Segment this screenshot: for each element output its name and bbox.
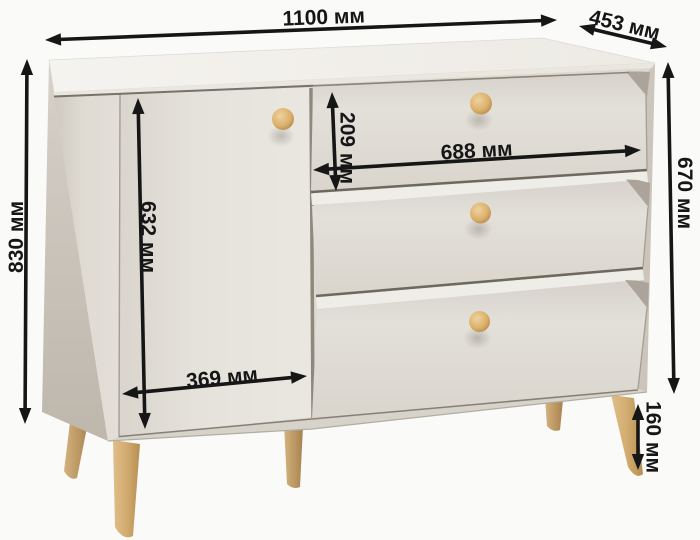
- svg-text:670 мм: 670 мм: [673, 157, 696, 229]
- svg-text:160 мм: 160 мм: [642, 401, 665, 473]
- svg-text:1100 мм: 1100 мм: [282, 4, 365, 30]
- svg-text:632 мм: 632 мм: [137, 201, 160, 273]
- svg-text:688 мм: 688 мм: [440, 137, 513, 164]
- svg-text:209 мм: 209 мм: [336, 112, 359, 184]
- svg-text:830 мм: 830 мм: [5, 201, 28, 273]
